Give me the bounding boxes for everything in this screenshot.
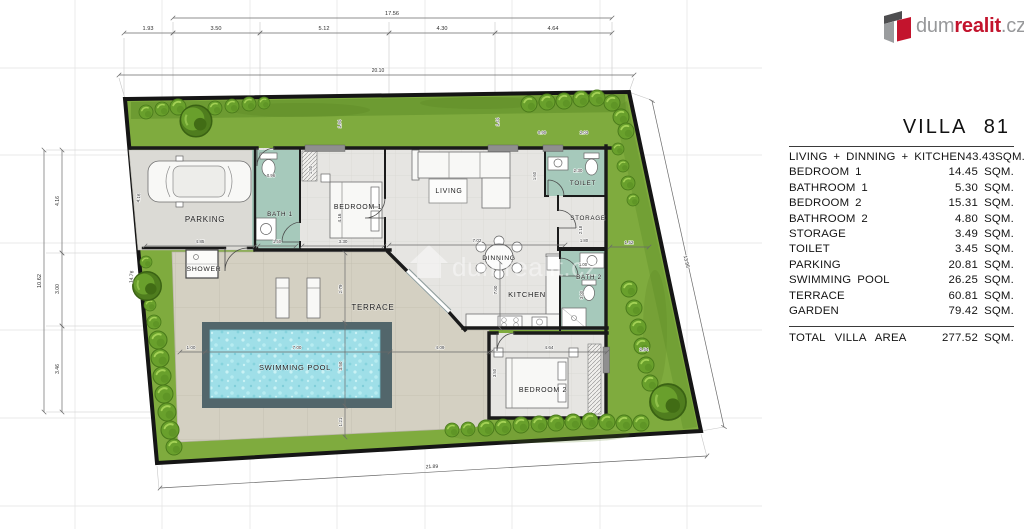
- area-lbl: TOILET: [789, 242, 934, 257]
- room-label-bath-2: BATH 2: [576, 274, 602, 281]
- room-label-living: LIVING: [435, 188, 462, 195]
- area-val: 3.49: [934, 227, 978, 242]
- area-lbl: SWIMMING POOL: [789, 273, 934, 288]
- bush-icon: [495, 419, 511, 435]
- logo-dum: dum: [916, 15, 954, 37]
- wardrobe-2: [588, 344, 601, 414]
- bush-icon: [521, 96, 537, 112]
- total-label: TOTAL VILLA AREA: [789, 331, 934, 346]
- bush-icon: [633, 415, 649, 431]
- tree-icon: [180, 105, 212, 137]
- area-unit: SQM.: [978, 227, 1014, 242]
- dimension-label: 2.54: [640, 347, 649, 352]
- area-unit: SQM.: [978, 304, 1014, 319]
- bush-icon: [151, 349, 169, 367]
- room-label-toilet: TOILET: [570, 180, 596, 187]
- bush-icon: [626, 300, 642, 316]
- dimension-label: 1.21: [338, 417, 343, 426]
- dimension-label: 1.00: [579, 262, 588, 267]
- dimension-label: 2.79: [338, 284, 343, 293]
- dimension-label: 1.52: [625, 240, 634, 245]
- dimension-label: 3.50: [492, 368, 497, 377]
- villa-title: VILLA 81: [789, 116, 1014, 139]
- bush-icon: [140, 256, 152, 268]
- area-table: LIVING + DINNING + KITCHEN43.43SQM.BEDRO…: [789, 147, 1014, 319]
- area-unit: SQM.: [978, 242, 1014, 257]
- room-label-shower: SHOWER: [187, 266, 222, 273]
- bush-icon: [242, 97, 256, 111]
- floor-plan-document: dumrealit.cz 17.561.933.505.124.304.6420…: [0, 0, 1024, 529]
- dimension-label: 2.30: [574, 168, 583, 173]
- dimension-label: 14.76: [128, 270, 135, 283]
- area-val: 14.45: [934, 165, 978, 180]
- dumrealit-logo-text: dumrealit.cz: [916, 15, 1024, 38]
- bush-icon: [539, 94, 555, 110]
- total-area-row: TOTAL VILLA AREA 277.52 SQM.: [789, 331, 1014, 346]
- logo-realit: realit: [954, 15, 1001, 37]
- area-lbl: STORAGE: [789, 227, 934, 242]
- area-unit: SQM.: [978, 196, 1014, 211]
- dimension-label: 20.10: [372, 68, 385, 74]
- area-lbl: TERRACE: [789, 289, 934, 304]
- area-unit: SQM.: [978, 289, 1014, 304]
- room-label-bedroom-2: BEDROOM 2: [519, 387, 567, 394]
- dimension-label: 4.09: [436, 345, 445, 350]
- bush-icon: [161, 421, 179, 439]
- area-unit: SQM.: [978, 181, 1014, 196]
- bush-icon: [582, 413, 598, 429]
- dimension-label: 1.44: [495, 117, 500, 126]
- room-label-kitchen: KITCHEN: [508, 290, 546, 299]
- area-table-row: BATHROOM 15.30SQM.: [789, 181, 1014, 196]
- outdoor-shower: [186, 250, 218, 278]
- bush-icon: [604, 95, 620, 111]
- bush-icon: [225, 99, 239, 113]
- bush-icon: [621, 281, 637, 297]
- area-table-row: STORAGE3.49SQM.: [789, 227, 1014, 242]
- room-label-bedroom-1: BEDROOM 1: [334, 204, 382, 211]
- room-label-parking: PARKING: [185, 215, 225, 224]
- bush-icon: [166, 439, 182, 455]
- bush-icon: [445, 423, 459, 437]
- area-unit: SQM.: [978, 273, 1014, 288]
- room-label-swimming-pool: SWIMMING POOL: [259, 363, 331, 372]
- bush-icon: [139, 105, 153, 119]
- area-lbl: PARKING: [789, 258, 934, 273]
- area-unit: SQM.: [978, 258, 1014, 273]
- total-unit: SQM.: [978, 331, 1014, 346]
- dumrealit-logo-icon: [884, 8, 911, 44]
- dimension-label: 1.60: [532, 171, 537, 180]
- area-table-row: GARDEN79.42SQM.: [789, 304, 1014, 319]
- dimension-label: 10.62: [37, 274, 43, 288]
- area-table-row: TOILET3.45SQM.: [789, 242, 1014, 257]
- area-val: 26.25: [934, 273, 978, 288]
- bush-icon: [621, 176, 635, 190]
- dimension-label: 3.30: [339, 239, 348, 244]
- tree-icon: [133, 272, 162, 301]
- bush-icon: [556, 93, 572, 109]
- area-val: 43.43: [966, 150, 996, 165]
- total-value: 277.52: [934, 331, 978, 346]
- dimension-label: 4.16: [136, 193, 142, 203]
- dimension-label: 0.96: [267, 173, 276, 178]
- bush-icon: [478, 420, 494, 436]
- dumrealit-logo: dumrealit.cz: [884, 8, 1024, 44]
- area-lbl: BEDROOM 2: [789, 196, 934, 211]
- dimension-label: 7.00: [493, 285, 498, 294]
- bush-icon: [565, 414, 581, 430]
- area-table-row: LIVING + DINNING + KITCHEN43.43SQM.: [789, 150, 1014, 165]
- dimension-label: 0.90: [538, 130, 547, 135]
- bush-icon: [617, 160, 629, 172]
- dimension-label: 4.64: [548, 26, 559, 32]
- dimension-label: 1.93: [143, 26, 154, 32]
- area-table-row: TERRACE60.81SQM.: [789, 289, 1014, 304]
- bush-icon: [258, 97, 270, 109]
- dimension-label: 4.16: [55, 196, 61, 206]
- area-table-row: BATHROOM 24.80SQM.: [789, 212, 1014, 227]
- bush-icon: [461, 422, 475, 436]
- bush-icon: [155, 102, 169, 116]
- room-label-dinning: DINNING: [482, 255, 516, 262]
- area-unit: SQM.: [995, 150, 1024, 165]
- bush-icon: [149, 331, 167, 349]
- tree-icon: [650, 384, 686, 420]
- dimension-label: 7.02: [473, 238, 482, 243]
- bush-icon: [513, 417, 529, 433]
- bush-icon: [573, 91, 589, 107]
- dimension-label: 13.95: [682, 255, 691, 269]
- area-summary-panel: VILLA 81 LIVING + DINNING + KITCHEN43.43…: [789, 116, 1014, 347]
- room-label-terrace: TERRACE: [351, 303, 394, 312]
- bush-icon: [638, 357, 654, 373]
- floor-plan-drawing: dumrealit.cz 17.561.933.505.124.304.6420…: [0, 0, 770, 529]
- area-table-row: SWIMMING POOL26.25SQM.: [789, 273, 1014, 288]
- room-label-bath-1: BATH 1: [267, 211, 293, 218]
- dimension-label: 1.00: [187, 345, 196, 350]
- bush-icon: [630, 319, 646, 335]
- bush-icon: [548, 415, 564, 431]
- area-lbl: GARDEN: [789, 304, 934, 319]
- bush-icon: [147, 315, 161, 329]
- bush-icon: [155, 385, 173, 403]
- area-table-row: BEDROOM 114.45SQM.: [789, 165, 1014, 180]
- dimension-label: 2.03: [580, 130, 589, 135]
- area-val: 5.30: [934, 181, 978, 196]
- dimension-label: 7.00: [293, 345, 302, 350]
- dimension-label: 3.46: [55, 364, 61, 374]
- bush-icon: [616, 415, 632, 431]
- logo-cz: .cz: [1001, 15, 1024, 37]
- dimension-label: 3.00: [579, 290, 584, 299]
- area-table-row: PARKING20.81SQM.: [789, 258, 1014, 273]
- dimension-label: 4.85: [196, 239, 205, 244]
- bush-icon: [153, 367, 171, 385]
- total-divider: [789, 326, 1014, 327]
- dimension-label: 1.94: [337, 119, 342, 128]
- area-table-row: BEDROOM 215.31SQM.: [789, 196, 1014, 211]
- bush-icon: [627, 194, 639, 206]
- bush-icon: [618, 123, 634, 139]
- area-val: 3.45: [934, 242, 978, 257]
- dimension-label: 4.16: [337, 213, 342, 222]
- dimension-label: 1.50: [273, 239, 282, 244]
- dimension-label: 17.56: [385, 11, 399, 17]
- area-val: 15.31: [934, 196, 978, 211]
- dimension-label: 1.80: [580, 238, 589, 243]
- area-val: 4.80: [934, 212, 978, 227]
- dimension-label: 1.50: [308, 165, 313, 174]
- dimension-label: 3.50: [338, 361, 343, 370]
- dimension-label: 4.30: [437, 26, 448, 32]
- area-lbl: BEDROOM 1: [789, 165, 934, 180]
- area-val: 79.42: [934, 304, 978, 319]
- area-val: 60.81: [934, 289, 978, 304]
- area-unit: SQM.: [978, 212, 1014, 227]
- bush-icon: [589, 90, 605, 106]
- area-val: 20.81: [934, 258, 978, 273]
- dimension-label: 2.18: [578, 225, 583, 234]
- bush-icon: [612, 143, 624, 155]
- bush-icon: [599, 414, 615, 430]
- area-lbl: LIVING + DINNING + KITCHEN: [789, 150, 966, 165]
- area-lbl: BATHROOM 1: [789, 181, 934, 196]
- bush-icon: [531, 416, 547, 432]
- car: [148, 156, 251, 207]
- dimension-label: 3.50: [211, 26, 222, 32]
- dimension-label: 21.89: [426, 464, 439, 471]
- dimension-label: 3.00: [55, 284, 61, 294]
- area-lbl: BATHROOM 2: [789, 212, 934, 227]
- dimension-label: 4.64: [545, 345, 554, 350]
- room-label-storage: STORAGE: [570, 215, 606, 222]
- bush-icon: [158, 403, 176, 421]
- area-unit: SQM.: [978, 165, 1014, 180]
- dimension-label: 5.12: [319, 26, 330, 32]
